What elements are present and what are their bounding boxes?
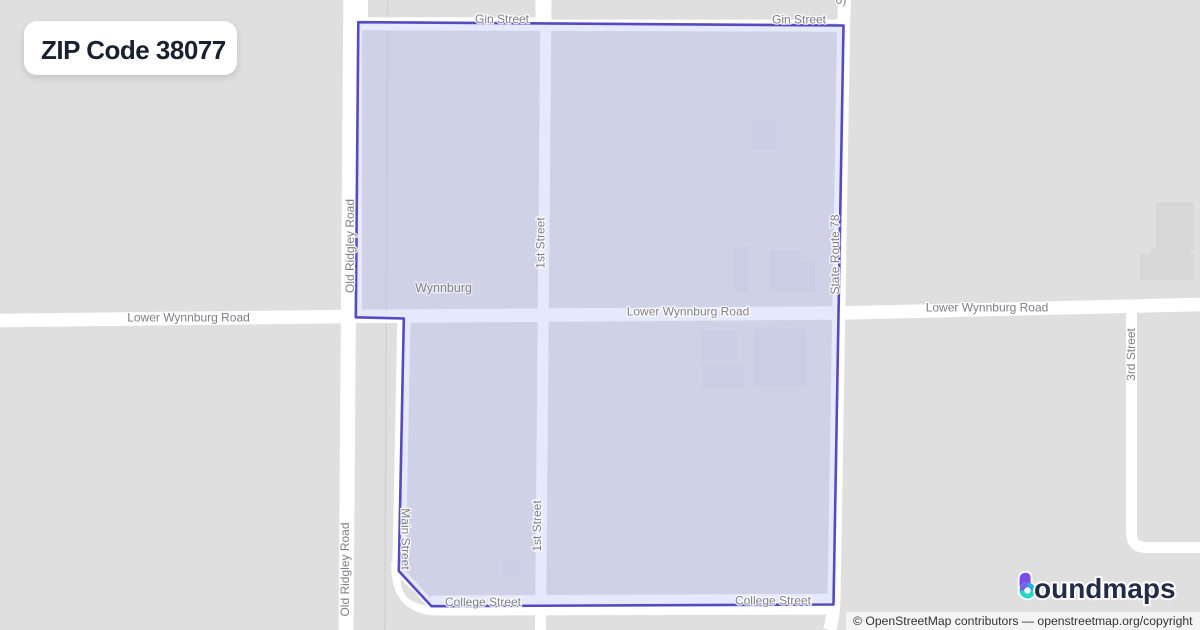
svg-text:oundmaps: oundmaps [1034,573,1176,604]
svg-text:Wynnburg: Wynnburg [415,281,472,295]
svg-text:Main Street: Main Street [399,508,413,570]
svg-text:1st Street: 1st Street [530,500,544,552]
svg-text:Gin Street: Gin Street [772,13,827,27]
svg-text:Old Ridgley Road: Old Ridgley Road [338,522,352,616]
svg-text:3rd Street: 3rd Street [1124,327,1138,380]
svg-text:College Street: College Street [735,594,812,608]
svg-text:1st Street: 1st Street [533,217,547,269]
svg-text:Lower Wynnburg Road: Lower Wynnburg Road [127,311,250,325]
svg-text:0): 0) [836,0,847,7]
svg-text:State Route 78: State Route 78 [828,214,842,294]
svg-text:Gin Street: Gin Street [475,12,530,26]
svg-text:Old Ridgley Road: Old Ridgley Road [343,199,357,293]
svg-text:College Street: College Street [445,595,522,609]
svg-text:Lower Wynnburg Road: Lower Wynnburg Road [627,305,750,319]
svg-text:Lower Wynnburg Road: Lower Wynnburg Road [926,301,1049,315]
